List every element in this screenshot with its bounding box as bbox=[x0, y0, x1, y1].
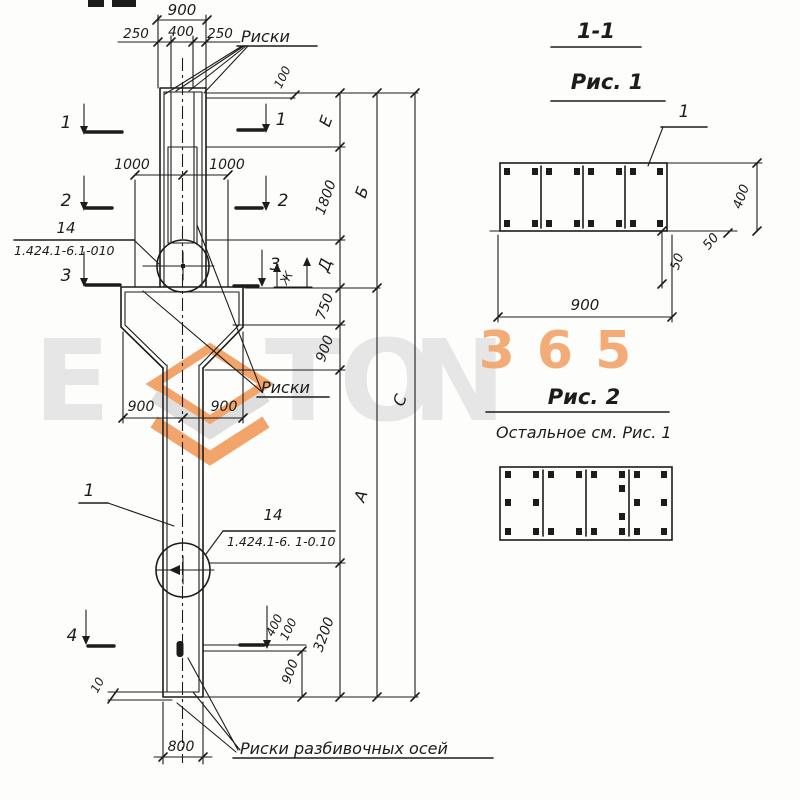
section-1-left: 1 bbox=[61, 113, 72, 133]
section-4-left: 4 bbox=[67, 626, 78, 646]
callout-upper-ref: 1.424.1-6.1-010 bbox=[14, 243, 115, 258]
riski-top-text: Риски bbox=[241, 27, 290, 46]
fig2-section: Рис. 2 Остальное см. Рис. 1 bbox=[486, 385, 672, 540]
fig1-dim-50-a: 50 bbox=[700, 231, 722, 253]
corner-marks bbox=[88, 0, 136, 7]
dim-10-text: 10 bbox=[88, 675, 108, 695]
dim-top: 900 250 400 250 bbox=[118, 1, 240, 88]
dim-letter-e: Е bbox=[315, 112, 337, 129]
watermark-letter-e: E bbox=[34, 317, 111, 447]
section-3-left: 3 bbox=[61, 266, 72, 286]
fig2-note: Остальное см. Рис. 1 bbox=[496, 423, 672, 442]
callout-lower-pos: 14 bbox=[263, 506, 282, 524]
dim-1000-right: 1000 bbox=[209, 157, 245, 173]
dim-900-top: 900 bbox=[168, 1, 197, 19]
dim-1000-left: 1000 bbox=[114, 157, 150, 173]
dim-letter-a: А bbox=[350, 488, 372, 506]
fig1-dim-50-b: 50 bbox=[668, 251, 688, 272]
dim-1000-pair: 1000 1000 bbox=[114, 157, 245, 287]
callout-upper-pos: 14 bbox=[56, 219, 75, 237]
fig1-dim-900: 900 bbox=[571, 296, 600, 314]
riski-middle-text: Риски bbox=[261, 378, 310, 397]
riski-axes-text: Риски разбивочных осей bbox=[240, 739, 448, 758]
dim-3200: 3200 bbox=[311, 615, 338, 654]
dim-1800: 1800 bbox=[313, 178, 340, 217]
fig1-section: 1-1 Рис. 1 1 400 50 50 900 bbox=[490, 19, 762, 322]
fig1-dim-400: 400 bbox=[730, 183, 753, 211]
dim-letter-b: Б bbox=[351, 184, 373, 201]
section-2-right: 2 bbox=[278, 191, 289, 211]
position-1-text: 1 bbox=[84, 481, 95, 501]
fig2-caption: Рис. 2 bbox=[548, 385, 620, 409]
dim-letter-d: Д bbox=[313, 256, 335, 275]
fig1-position-1: 1 bbox=[679, 102, 690, 122]
dim-900-corbel-right-text: 900 bbox=[211, 399, 238, 415]
dim-250-left: 250 bbox=[123, 26, 149, 42]
fig1-title: 1-1 bbox=[577, 19, 615, 43]
dim-400-top: 400 bbox=[168, 24, 194, 40]
section-2-left: 2 bbox=[61, 191, 72, 211]
watermark-365: 365 bbox=[479, 321, 654, 381]
column-working-drawing: E T O N 365 bbox=[0, 0, 800, 800]
lifting-hole-lower bbox=[156, 543, 214, 597]
section-1-right: 1 bbox=[276, 110, 287, 130]
dim-10-bottom-left: 10 bbox=[88, 675, 172, 703]
drawing-sheet: E T O N 365 bbox=[0, 0, 800, 800]
position-1-elevation: 1 bbox=[79, 481, 174, 526]
dim-100-top-right: 100 bbox=[271, 64, 294, 91]
callout-lower: 14 1.424.1-6. 1-0.10 bbox=[206, 506, 335, 554]
dim-800-text: 800 bbox=[168, 739, 195, 755]
fig1-caption: Рис. 1 bbox=[571, 70, 643, 94]
dim-900-corbel-left-text: 900 bbox=[128, 399, 155, 415]
dim-900-bottom-right: 900 bbox=[279, 658, 302, 686]
label-riski-axes: Риски разбивочных осей bbox=[177, 658, 493, 758]
dim-250-right: 250 bbox=[207, 26, 233, 42]
callout-lower-ref: 1.424.1-6. 1-0.10 bbox=[227, 534, 335, 549]
